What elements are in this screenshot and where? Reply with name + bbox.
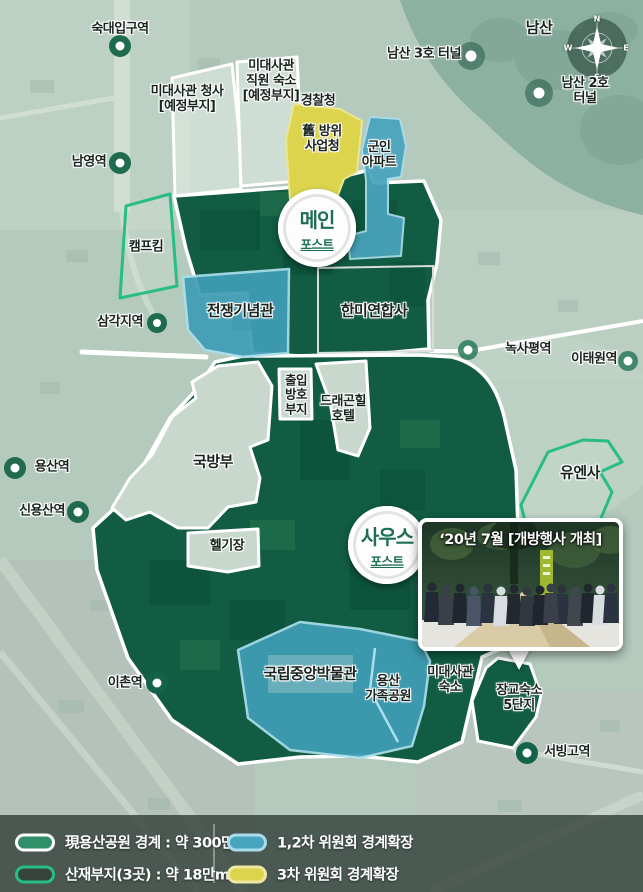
legend-label-committee3: 3차 위원회 경계확장 (277, 864, 398, 885)
label-war-memorial: 전쟁기념관 (207, 302, 274, 319)
station-marker-ichon (146, 672, 168, 694)
label-dragon-hill: 드래곤힐 호텔 (320, 395, 366, 425)
station-marker-sookdae (109, 35, 131, 57)
main-post-title: 메인 (300, 204, 335, 233)
label-tunnel2: 남산 2호 터널 (556, 77, 614, 107)
label-tunnel3: 남산 3호 터널 (387, 48, 461, 63)
label-cfc: 한미연합사 (341, 302, 408, 319)
south-post-badge: 사우스 포스트 (348, 506, 426, 584)
station-label-itaewon: 이태원역 (571, 353, 617, 368)
legend-label-committee12: 1,2차 위원회 경계확장 (277, 832, 413, 853)
station-label-ichon: 이촌역 (108, 677, 142, 692)
station-label-yongsan: 용산역 (35, 461, 69, 476)
event-photo: ‘20년 7월 [개방행사 개최] (418, 518, 623, 651)
yongsan-park-map: N E S W 숙대입구역 남영역 삼각지역 녹사평역 이태원역 용산역 신용산… (0, 0, 643, 892)
compass-n: N (594, 15, 601, 24)
tunnel2-marker (525, 79, 553, 107)
label-family-park: 용산 가족공원 (365, 675, 411, 705)
station-marker-noksapyeong (458, 340, 478, 360)
station-marker-sinyongsan (67, 501, 89, 523)
station-label-sookdae: 숙대입구역 (91, 23, 148, 38)
photo-caption: ‘20년 7월 [개방행사 개최] (422, 528, 619, 549)
legend-item-scattered-sites: 산재부지(3곳) : 약 18만m² (15, 864, 235, 885)
south-post-title: 사우스 (361, 521, 413, 550)
station-label-namyeong: 남영역 (72, 156, 106, 171)
station-marker-yongsan (4, 457, 26, 479)
label-un-command: 유엔사 (560, 464, 600, 481)
label-museum: 국립중앙박물관 (263, 665, 356, 682)
label-military-apt: 군인 아파트 (362, 141, 396, 171)
label-police: 경찰청 (301, 95, 335, 110)
label-old-dapa: 舊 방위 사업청 (302, 125, 341, 155)
compass-e: E (623, 44, 628, 53)
label-mnd: 국방부 (193, 453, 233, 470)
south-post-subtitle: 포스트 (370, 551, 403, 570)
main-post-subtitle: 포스트 (300, 234, 333, 253)
main-post-badge: 메인 포스트 (278, 189, 356, 267)
station-label-seobinggo: 서빙고역 (544, 746, 590, 761)
label-access-site: 출입 방호 부지 (285, 373, 307, 416)
label-embassy-office: 미대사관 청사 [예정부지] (151, 85, 224, 115)
legend-item-committee3: 3차 위원회 경계확장 (227, 864, 398, 885)
legend-swatch-park-green (15, 833, 55, 851)
station-marker-namyeong (109, 152, 131, 174)
tunnel3-marker (457, 42, 485, 70)
legend-swatch-teal (227, 833, 267, 851)
label-embassy-staff: 미대사관 직원 숙소 [예정부지] (243, 60, 300, 105)
legend-bar: 現용산공원 경계 : 약 300만m² 산재부지(3곳) : 약 18만m² 1… (0, 815, 643, 892)
station-label-sinyongsan: 신용산역 (19, 505, 65, 520)
compass-rose (567, 18, 627, 78)
station-marker-samgakji (147, 313, 167, 333)
legend-item-park-boundary: 現용산공원 경계 : 약 300만m² (15, 832, 254, 853)
label-heliport: 헬기장 (210, 540, 244, 555)
label-camp-kim: 캠프킴 (129, 241, 163, 256)
compass-w: W (564, 44, 573, 53)
legend-label-scattered-sites: 산재부지(3곳) : 약 18만m² (65, 864, 235, 885)
station-label-noksapyeong: 녹사평역 (505, 343, 551, 358)
label-embassy-housing: 미대사관 숙소 (427, 666, 473, 696)
station-marker-seobinggo (516, 742, 538, 764)
label-namsan: 남산 (526, 19, 553, 36)
legend-swatch-scattered-outline (15, 865, 55, 883)
legend-swatch-yellow (227, 865, 267, 883)
station-marker-itaewon (618, 351, 638, 371)
legend-item-committee12: 1,2차 위원회 경계확장 (227, 832, 413, 853)
station-label-samgakji: 삼각지역 (97, 316, 143, 331)
label-officer-housing: 장교숙소 5단지 (496, 684, 542, 714)
